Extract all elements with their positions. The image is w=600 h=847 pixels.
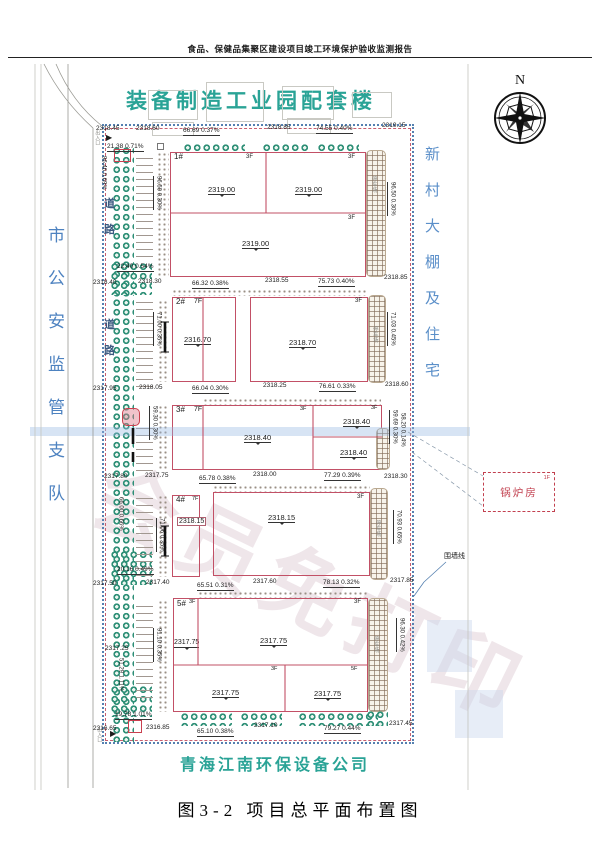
plan-label: 路 <box>104 346 115 358</box>
plan-label: 围墙线 <box>444 553 465 560</box>
south-neighbor-label: 青海江南环保设备公司 <box>110 751 440 775</box>
plan-label: 66.32 0.38% <box>192 281 229 289</box>
hedge-strip <box>157 152 169 277</box>
plan-label: 66.04 0.30% <box>192 386 229 394</box>
plan-label: 71.03 0.45% <box>387 312 395 346</box>
plan-line <box>412 452 483 506</box>
plan-label: 75.73 0.40% <box>318 279 355 287</box>
tree-row <box>366 710 388 726</box>
plan-label: 71.06 0.35% <box>156 518 164 552</box>
plan-label: 2318.85 <box>384 275 408 282</box>
plan-label: 2317.25 <box>105 646 129 653</box>
compass-north-label: N <box>515 73 525 88</box>
plan-label: 2316.70 <box>184 336 211 345</box>
report-page: 食品、保健品集聚区建设项目竣工环境保护验收监测报告 装备制造工业园配套楼 市公安… <box>0 0 600 847</box>
plan-label: 2318.70 <box>289 339 316 348</box>
plan-label: 96.50 0.30% <box>153 176 161 210</box>
plan-label: 停车场 <box>374 520 380 537</box>
hedge-strip <box>158 405 169 470</box>
plan-label: 3F <box>348 215 355 221</box>
plan-label: 20.16 0.49% <box>117 567 154 575</box>
plan-label: 58.20 0.14% <box>399 413 405 447</box>
building-3 <box>172 405 382 470</box>
hedge-strip <box>172 289 368 296</box>
plan-path <box>56 64 102 126</box>
plan-label: 3F <box>355 298 362 304</box>
plan-label: 出入口 <box>94 130 99 145</box>
plan-label: 7F <box>192 497 198 503</box>
plan-label: ▶ <box>110 730 116 738</box>
tree-row <box>262 143 308 154</box>
plan-label: 59.69 0.30% <box>389 410 397 444</box>
parking-grid <box>366 150 386 277</box>
benchmark-marker <box>157 143 164 150</box>
plan-label: 78.13 0.32% <box>323 580 360 588</box>
building-1 <box>170 152 366 277</box>
plan-label: 停车场 <box>370 176 376 193</box>
plan-label: 22.40 0.54% <box>117 264 154 272</box>
gate-box <box>128 720 142 733</box>
plan-label: 2318.30 <box>384 474 408 481</box>
scan-patch <box>455 690 503 738</box>
plan-label: 3F <box>300 407 306 413</box>
figure-caption: 图3-2 项目总平面布置图 <box>0 796 600 821</box>
plan-label: 2319.00 <box>295 186 322 195</box>
plan-line <box>408 432 483 476</box>
plan-label: 3F <box>246 154 253 160</box>
plan-label: 2# <box>176 298 185 306</box>
plan-label: 2317.50 <box>93 581 117 588</box>
plan-label: 3# <box>176 406 185 414</box>
neighbor-building <box>282 86 334 120</box>
plan-label: 2317.40 <box>146 580 170 587</box>
plan-label: 96.46 0.69% <box>100 156 106 190</box>
plan-label: 2318.05 <box>139 385 163 392</box>
hedge-strip <box>213 485 370 492</box>
plan-label: 19.78 1.01% <box>115 712 152 720</box>
plan-label: 2317.85 <box>390 578 414 585</box>
plan-label: 2318.00 <box>253 472 277 479</box>
boiler-room-floor: 1F <box>544 475 550 481</box>
plan-label: 停车场 <box>372 636 378 653</box>
plan-label: 2318.60 <box>385 382 409 389</box>
plan-label: 2318.40 <box>93 280 117 287</box>
plan-label: 65.51 0.31% <box>197 583 234 591</box>
plan-label: 77.29 0.39% <box>324 473 361 481</box>
plan-label: 51.29 1.11% <box>117 658 123 691</box>
neighbor-building <box>352 92 392 118</box>
plan-label: 59.30 0.30% <box>149 406 157 440</box>
hedge-strip <box>203 398 381 405</box>
east-neighbor-label: 新村大棚及住宅 <box>421 146 442 398</box>
plan-label: 2319.15 <box>382 123 406 130</box>
compass-icon: N <box>486 70 554 152</box>
plan-label: 2318.15 <box>177 517 206 526</box>
plan-label: 96.30 0.42% <box>396 618 404 652</box>
plan-label: 66.00 0.66% <box>117 497 123 531</box>
plan-label: 路 <box>104 225 115 237</box>
plan-label: 2318.40 <box>244 434 271 443</box>
plan-label: 2317.75 <box>212 689 239 698</box>
plan-label: 道 <box>104 199 115 211</box>
plan-label: 2318.40 <box>340 449 367 458</box>
parking-ticks <box>136 158 153 262</box>
plan-label: 3F <box>189 600 195 606</box>
boiler-room-label: 锅炉房 <box>500 485 538 500</box>
plan-label: 2317.75 <box>145 473 169 480</box>
parking-grid <box>368 598 388 712</box>
plan-label: 2317.75 <box>174 639 199 648</box>
parking-ticks <box>136 606 153 700</box>
plan-label: 2317.60 <box>253 579 277 586</box>
plan-label: 3F <box>271 667 277 673</box>
plan-label: 2317.75 <box>260 637 287 646</box>
tree-row <box>183 143 245 154</box>
plan-label: 2317.80 <box>104 474 128 481</box>
plan-label: 3F <box>348 154 355 160</box>
plan-label: 2318.85 <box>267 125 291 132</box>
plan-label: 2319.00 <box>208 186 235 195</box>
plan-label: 2317.95 <box>93 386 117 393</box>
tree-row <box>180 712 232 726</box>
plan-label: 5# <box>177 600 186 608</box>
plan-label: 2317.75 <box>314 690 341 699</box>
building-4-main <box>213 492 370 576</box>
plan-label: 3F <box>354 599 361 605</box>
plan-label: 4# <box>176 496 185 504</box>
plan-label: ▶ <box>106 134 112 142</box>
plan-label: 出入口 <box>96 727 101 742</box>
plan-label: 74.55 0.40% <box>316 126 353 134</box>
header-rule <box>8 57 592 58</box>
tree-row <box>317 143 359 154</box>
plan-label: 66.69 0.37% <box>183 128 220 136</box>
parking-ticks <box>136 302 153 388</box>
west-neighbor-label: 市公安监管支队 <box>42 226 67 527</box>
plan-label: 2318.30 <box>138 279 162 286</box>
plan-label: 3F <box>371 406 377 412</box>
boiler-room-box: 锅炉房 1F <box>483 472 555 512</box>
hedge-strip <box>198 591 368 598</box>
scan-patch <box>427 620 472 672</box>
plan-label: 79.27 0.44% <box>324 726 361 734</box>
plan-label: 停车场 <box>371 326 377 343</box>
building-4-tower <box>172 495 200 577</box>
plan-label: 7F <box>194 298 202 305</box>
plan-label: 5F <box>351 667 357 673</box>
plan-label: 2319.00 <box>242 240 269 249</box>
report-header-title: 食品、保健品集聚区建设项目竣工环境保护验收监测报告 <box>0 43 600 55</box>
plan-label: 70.93 0.65% <box>393 510 401 544</box>
plan-label: 71.00 0.35% <box>153 312 161 346</box>
plan-label: 道 <box>104 320 115 332</box>
plan-label: 21.38 0.71% <box>107 144 144 152</box>
plan-label: 2318.60 <box>136 126 160 133</box>
plan-label: 65.10 0.38% <box>197 729 234 737</box>
plan-label: 2318.40 <box>343 418 370 427</box>
gate-box <box>122 408 140 426</box>
neighbor-building <box>206 82 264 122</box>
plan-label: 65.78 0.38% <box>199 476 236 484</box>
plan-label: 2317.45 <box>389 721 413 728</box>
plan-path <box>44 64 93 128</box>
plan-label: 2317.10 <box>254 723 278 730</box>
plan-label: 2316.85 <box>146 725 170 732</box>
plan-label: 2318.15 <box>268 514 295 523</box>
plan-label: 1# <box>174 153 183 161</box>
plan-label: 2318.55 <box>265 278 289 285</box>
plan-label: 2318.25 <box>263 383 287 390</box>
plan-label: 7F <box>194 406 202 413</box>
plan-label: 96.50 0.30% <box>387 182 395 216</box>
plan-label: 76.61 0.33% <box>319 384 356 392</box>
plan-label: 91.10 0.35% <box>153 628 161 662</box>
plan-label: 3F <box>357 494 364 500</box>
neighbor-building <box>148 90 198 120</box>
